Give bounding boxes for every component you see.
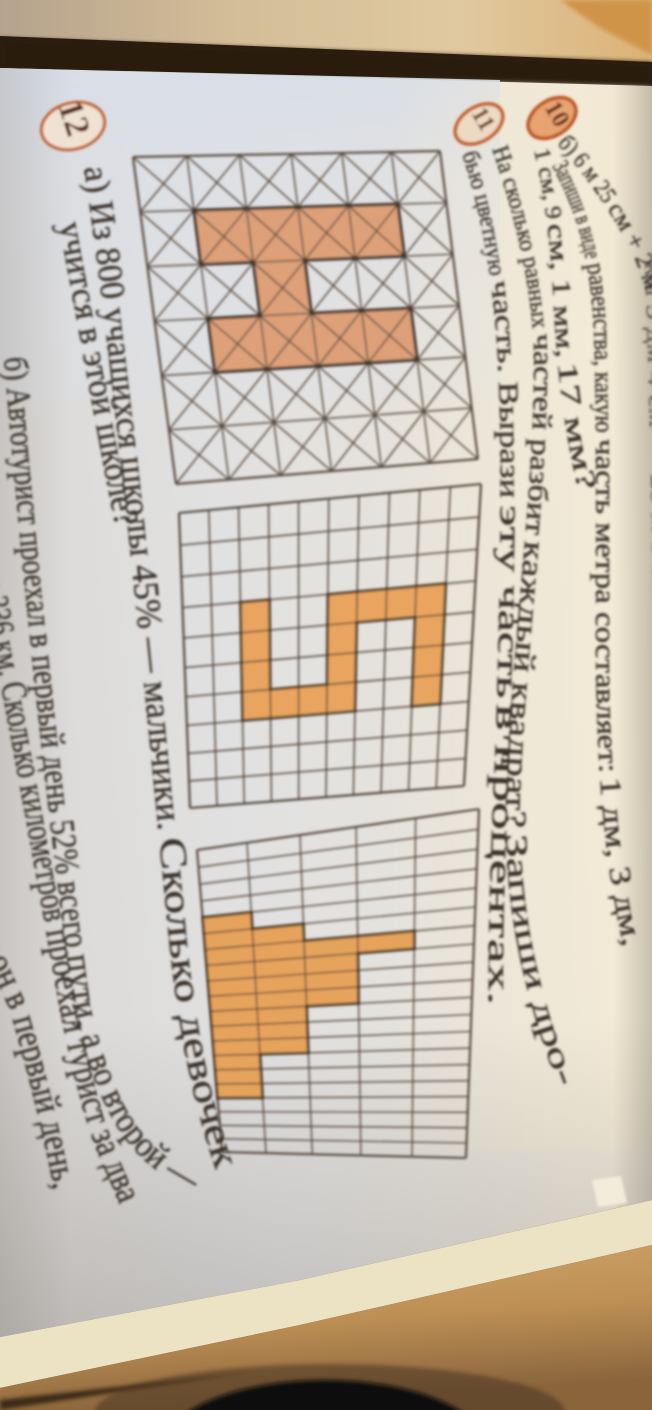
svg-text:часть метра составляет:: часть метра составляет: xyxy=(589,439,624,774)
svg-text:эту часть: эту часть xyxy=(490,505,527,699)
